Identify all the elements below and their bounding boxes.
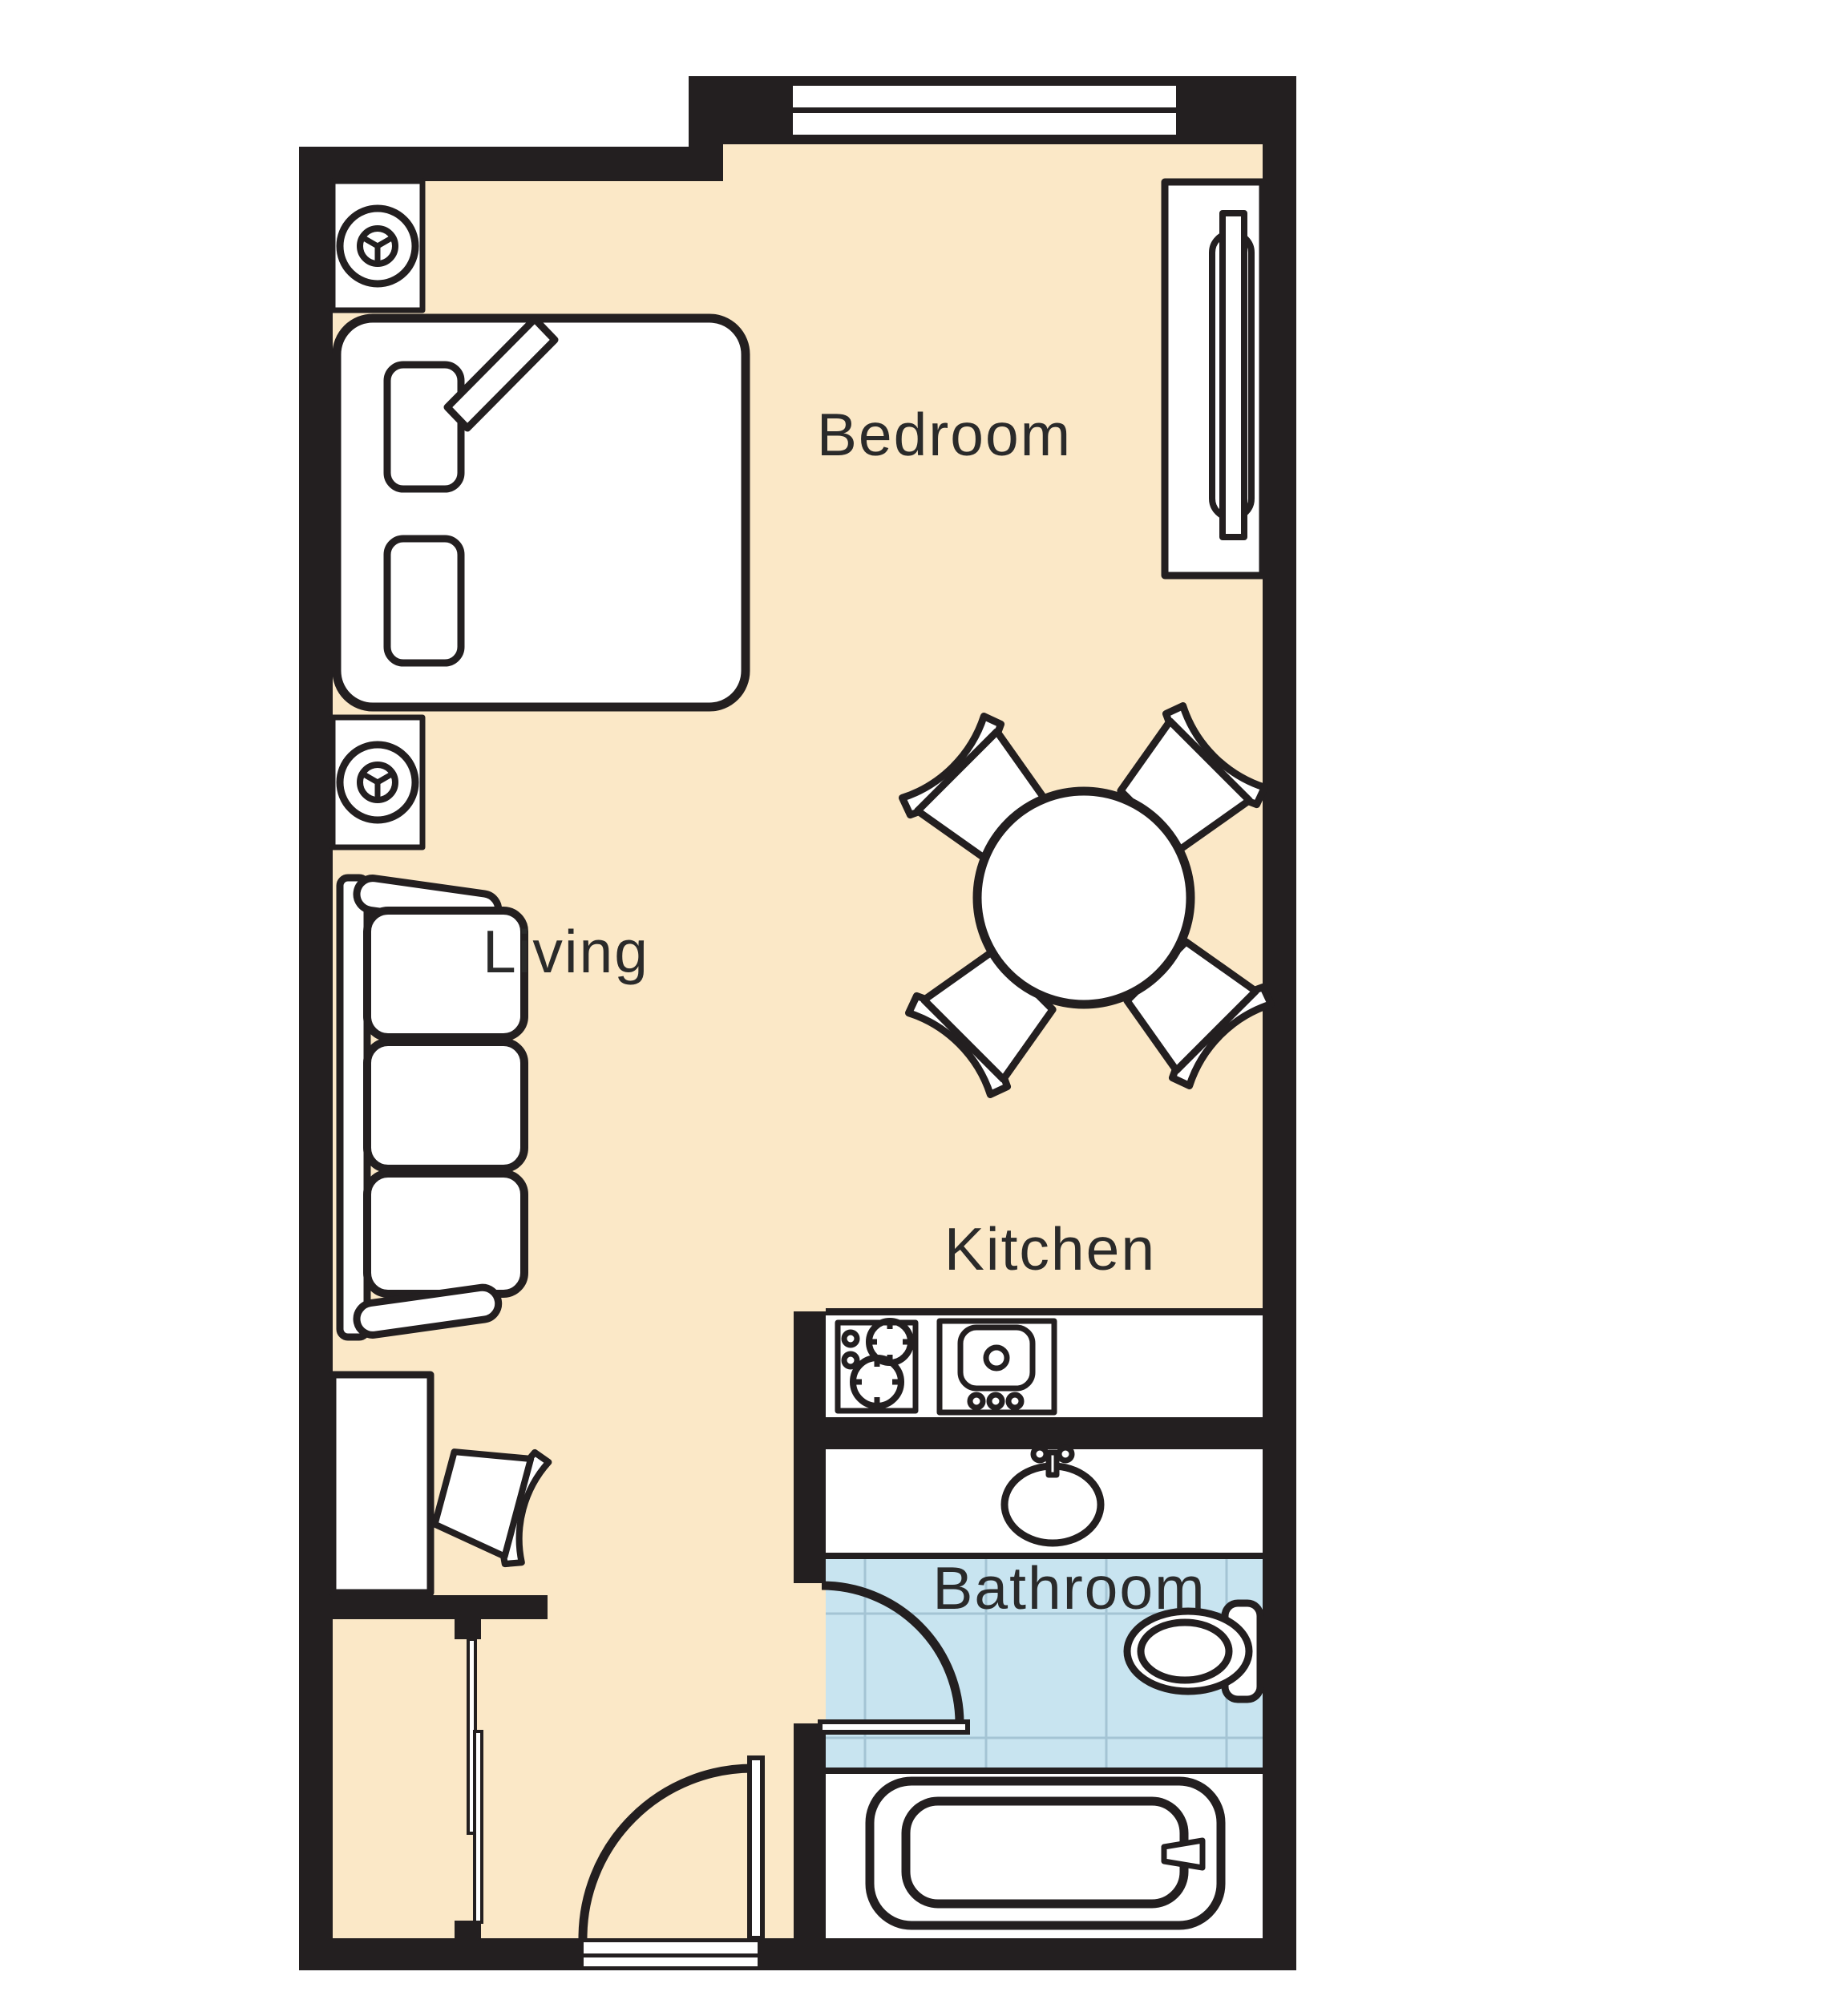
kitchen-sink-icon <box>940 1321 1054 1412</box>
bedroom-label: Bedroom <box>817 401 1072 468</box>
left-wall <box>299 147 333 1970</box>
living-label: Living <box>483 918 649 985</box>
closet-jamb-top <box>455 1615 481 1639</box>
bath-wall-upper <box>794 1311 826 1583</box>
kitchen-bath-divider <box>826 1417 1263 1449</box>
bathroom-label: Bathroom <box>932 1554 1206 1622</box>
floor-plan-page: Bedroom Living Kitchen Bathroom <box>0 0 1827 2016</box>
bath-wall-lower <box>794 1723 826 1956</box>
right-wall <box>1263 76 1296 1970</box>
floor-plan: Bedroom Living Kitchen Bathroom <box>0 0 1827 2016</box>
nightstand-icon <box>333 181 422 310</box>
bed-icon <box>337 318 746 707</box>
kitchen-label: Kitchen <box>944 1215 1156 1283</box>
nightstand-icon <box>333 717 422 847</box>
entry-threshold <box>584 1942 758 1966</box>
desk-icon <box>333 1375 430 1593</box>
bathtub-icon <box>870 1781 1221 1925</box>
kitchen-counter-edge <box>826 1308 1263 1315</box>
upper-left-wall <box>299 147 723 181</box>
cooktop-icon <box>838 1321 916 1411</box>
closet-wall <box>333 1595 548 1619</box>
tile-tub-edge <box>826 1768 1263 1774</box>
bedroom-window <box>793 86 1176 135</box>
bathroom-door-leaf <box>820 1722 968 1732</box>
tv-console-icon <box>1165 182 1263 576</box>
entry-door-leaf <box>750 1758 762 1938</box>
dining-table-icon <box>977 791 1190 1004</box>
closet-sliding-door-front <box>475 1731 482 1922</box>
